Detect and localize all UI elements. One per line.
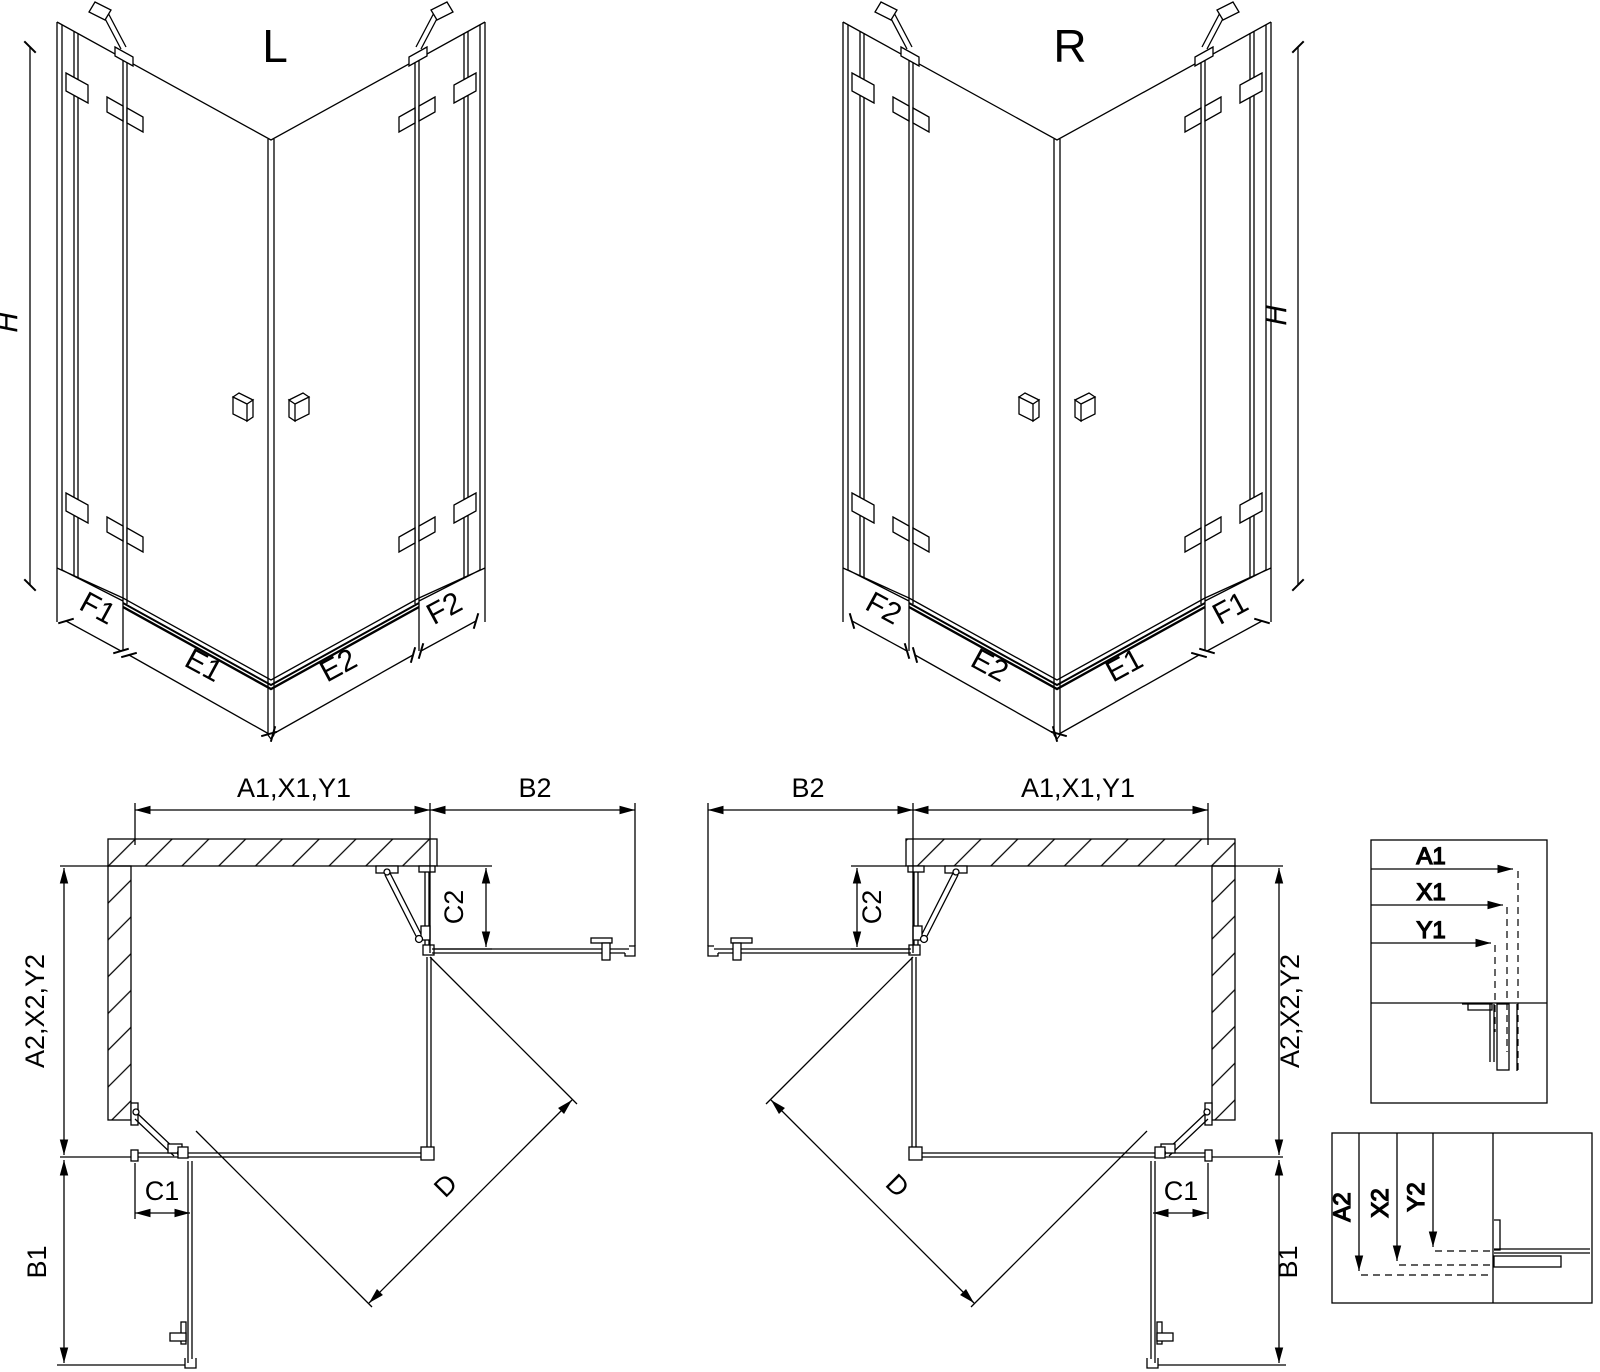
return-width-dimension-label: B2 — [791, 773, 824, 803]
wall-top — [108, 839, 437, 866]
detail-label-x2: X2 — [1367, 1188, 1394, 1217]
detail-label-y1: Y1 — [1416, 917, 1445, 944]
return-depth-dimension-label: B1 — [22, 1245, 52, 1278]
width-dimension-label: A1,X1,Y1 — [1021, 773, 1135, 803]
depth-dimension-label: A2,X2,Y2 — [20, 954, 50, 1068]
shower-enclosure-technical-drawing: L H F1 E1 E2 F2 R H F2 E2 E1 F1 A1,X1,Y1… — [0, 0, 1600, 1372]
height-label: H — [0, 311, 24, 332]
fixed-panel-bottom-label: C1 — [145, 1176, 180, 1206]
detail-label-x1: X1 — [1416, 879, 1445, 906]
detail-box-widths: A1 X1 Y1 — [1371, 840, 1547, 1103]
fixed-panel-bottom-label: C1 — [1164, 1176, 1199, 1206]
width-dimension-label: A1,X1,Y1 — [237, 773, 351, 803]
return-width-dimension-label: B2 — [518, 773, 551, 803]
wall-side — [1212, 866, 1235, 1120]
return-depth-dimension-label: B1 — [1273, 1245, 1303, 1278]
detail-label-a1: A1 — [1416, 843, 1445, 870]
drawing-svg: L H F1 E1 E2 F2 R H F2 E2 E1 F1 A1,X1,Y1… — [0, 0, 1600, 1372]
wall-side — [108, 866, 131, 1120]
variant-label-right: R — [1053, 20, 1086, 72]
detail-label-a2: A2 — [1329, 1192, 1356, 1221]
detail-box-depths: A2 X2 Y2 — [1329, 1133, 1592, 1303]
fixed-panel-top-label: C2 — [857, 890, 887, 925]
variant-label-left: L — [262, 20, 288, 72]
wall-top — [906, 839, 1235, 866]
detail-label-y2: Y2 — [1403, 1182, 1430, 1211]
depth-dimension-label: A2,X2,Y2 — [1275, 954, 1305, 1068]
height-label: H — [1260, 304, 1293, 325]
fixed-panel-top-label: C2 — [439, 890, 469, 925]
